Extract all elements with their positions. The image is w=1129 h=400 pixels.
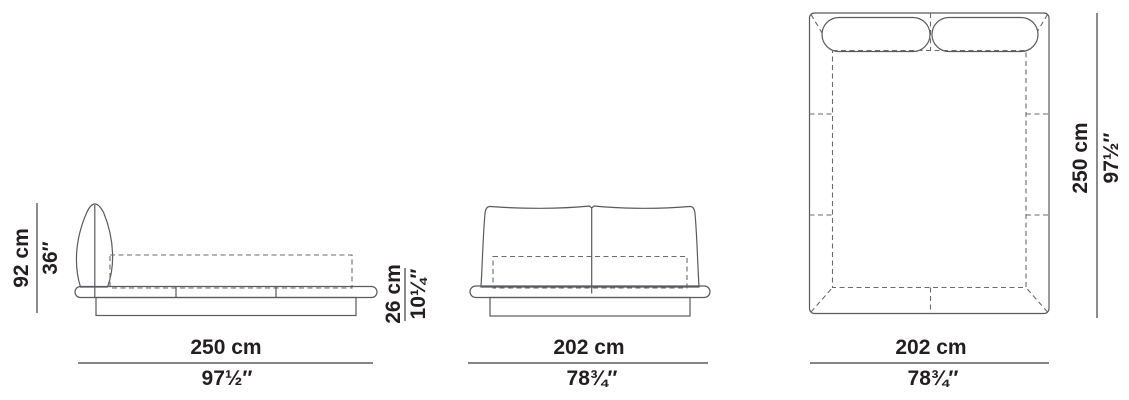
bed-dimension-diagram: 92 cm 36″ 26 cm 10¼″ 250 cm 97½″ 202 cm … — [0, 0, 1129, 400]
bed-frame-top-outline — [810, 13, 1050, 314]
top-length-in-label: 97½″ — [1100, 78, 1124, 238]
side-length-in-label: 97½″ — [127, 367, 327, 391]
platform-side-seams — [176, 287, 276, 298]
bed-base-front — [490, 298, 690, 317]
base-height-cm-label: 26 cm — [382, 214, 406, 374]
base-height-in-label: 10¼″ — [407, 214, 431, 374]
side-length-cm-label: 250 cm — [126, 336, 326, 360]
front-width-cm-label: 202 cm — [489, 336, 689, 360]
front-width-in-label: 78¾″ — [492, 367, 692, 391]
top-width-cm-label: 202 cm — [831, 336, 1031, 360]
pillow-right — [932, 18, 1038, 52]
bed-base-side — [96, 298, 356, 316]
top-view — [810, 13, 1050, 314]
headboard-front-outline — [481, 206, 699, 287]
top-length-cm-label: 250 cm — [1069, 78, 1093, 238]
top-width-in-label: 78¾″ — [833, 367, 1033, 391]
pillow-left — [822, 18, 930, 52]
side-height-in-label: 36″ — [39, 178, 63, 338]
side-height-cm-label: 92 cm — [10, 178, 34, 338]
side-view — [75, 204, 377, 316]
mattress-side-dashed — [110, 255, 352, 288]
front-view — [470, 206, 710, 316]
